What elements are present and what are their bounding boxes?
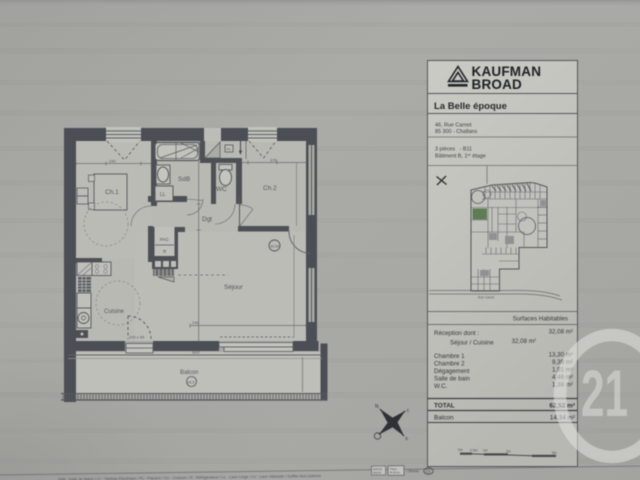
svg-text:60.60: 60.60	[271, 245, 280, 249]
svg-text:Réception dont :: Réception dont :	[434, 330, 479, 337]
svg-text:2m: 2m	[506, 450, 511, 454]
svg-text:TOTAL: TOTAL	[434, 403, 455, 410]
svg-text:PAC: PAC	[160, 237, 170, 242]
svg-text:E: E	[407, 408, 410, 413]
svg-text:240: 240	[192, 320, 199, 325]
svg-text:1m: 1m	[483, 449, 488, 453]
svg-text:Balcon: Balcon	[180, 370, 198, 376]
svg-text:0m: 0m	[458, 448, 463, 452]
svg-text:85 300 - Challans: 85 300 - Challans	[435, 129, 478, 135]
svg-text:3 pièces - B11: 3 pièces - B11	[435, 147, 472, 153]
svg-text:Balcon: Balcon	[434, 415, 454, 422]
svg-text:240: 240	[109, 159, 116, 164]
svg-text:Ch.2: Ch.2	[263, 185, 277, 192]
svg-text:Surfaces Habitables: Surfaces Habitables	[513, 316, 568, 323]
svg-text:21: 21	[581, 356, 628, 430]
svg-text:WC: WC	[216, 186, 227, 193]
svg-text:Chambre 1: Chambre 1	[434, 353, 465, 360]
svg-text:Dgt: Dgt	[202, 216, 212, 223]
svg-text:B2023: B2023	[373, 471, 382, 475]
svg-text:32,08 m²: 32,08 m²	[549, 329, 573, 336]
svg-text:46, Rue Carnot: 46, Rue Carnot	[435, 123, 472, 129]
svg-text:W.C.: W.C.	[434, 383, 448, 390]
svg-text:Bâtiment B, 1er étage: Bâtiment B, 1er étage	[435, 153, 486, 160]
svg-text:0.5m: 0.5m	[470, 448, 478, 452]
svg-text:Ch.1: Ch.1	[105, 189, 119, 196]
svg-text:378: 378	[270, 158, 277, 163]
svg-text:5m: 5m	[552, 451, 557, 455]
svg-text:N: N	[375, 404, 379, 410]
svg-text:Dégagement: Dégagement	[434, 368, 470, 375]
svg-text:Chambre 2: Chambre 2	[434, 361, 465, 368]
svg-text:SdB: SdB	[178, 176, 190, 183]
svg-text:LL: LL	[160, 192, 166, 198]
svg-text:S: S	[405, 436, 408, 441]
svg-text:La Belle époque: La Belle époque	[434, 101, 507, 112]
svg-text:32,08 m²: 32,08 m²	[512, 338, 536, 345]
svg-text:Séjour / Cuisine: Séjour / Cuisine	[450, 340, 494, 347]
svg-text:220 x 95: 220 x 95	[129, 335, 145, 340]
svg-text:C3: C3	[426, 470, 431, 474]
svg-text:14,3: 14,3	[187, 381, 194, 385]
svg-text:Salle de bain: Salle de bain	[434, 376, 470, 383]
svg-text:Pn: Pn	[227, 148, 231, 152]
svg-text:Rue Carnot: Rue Carnot	[478, 296, 494, 300]
svg-text:BROAD: BROAD	[472, 77, 523, 92]
svg-text:920: 920	[192, 350, 200, 355]
svg-text:Cuisine: Cuisine	[104, 309, 125, 315]
svg-text:Séjour: Séjour	[224, 284, 244, 291]
svg-text:/ Niveau: / Niveau	[406, 469, 419, 473]
svg-text:B-28 du: B-28 du	[390, 470, 400, 474]
